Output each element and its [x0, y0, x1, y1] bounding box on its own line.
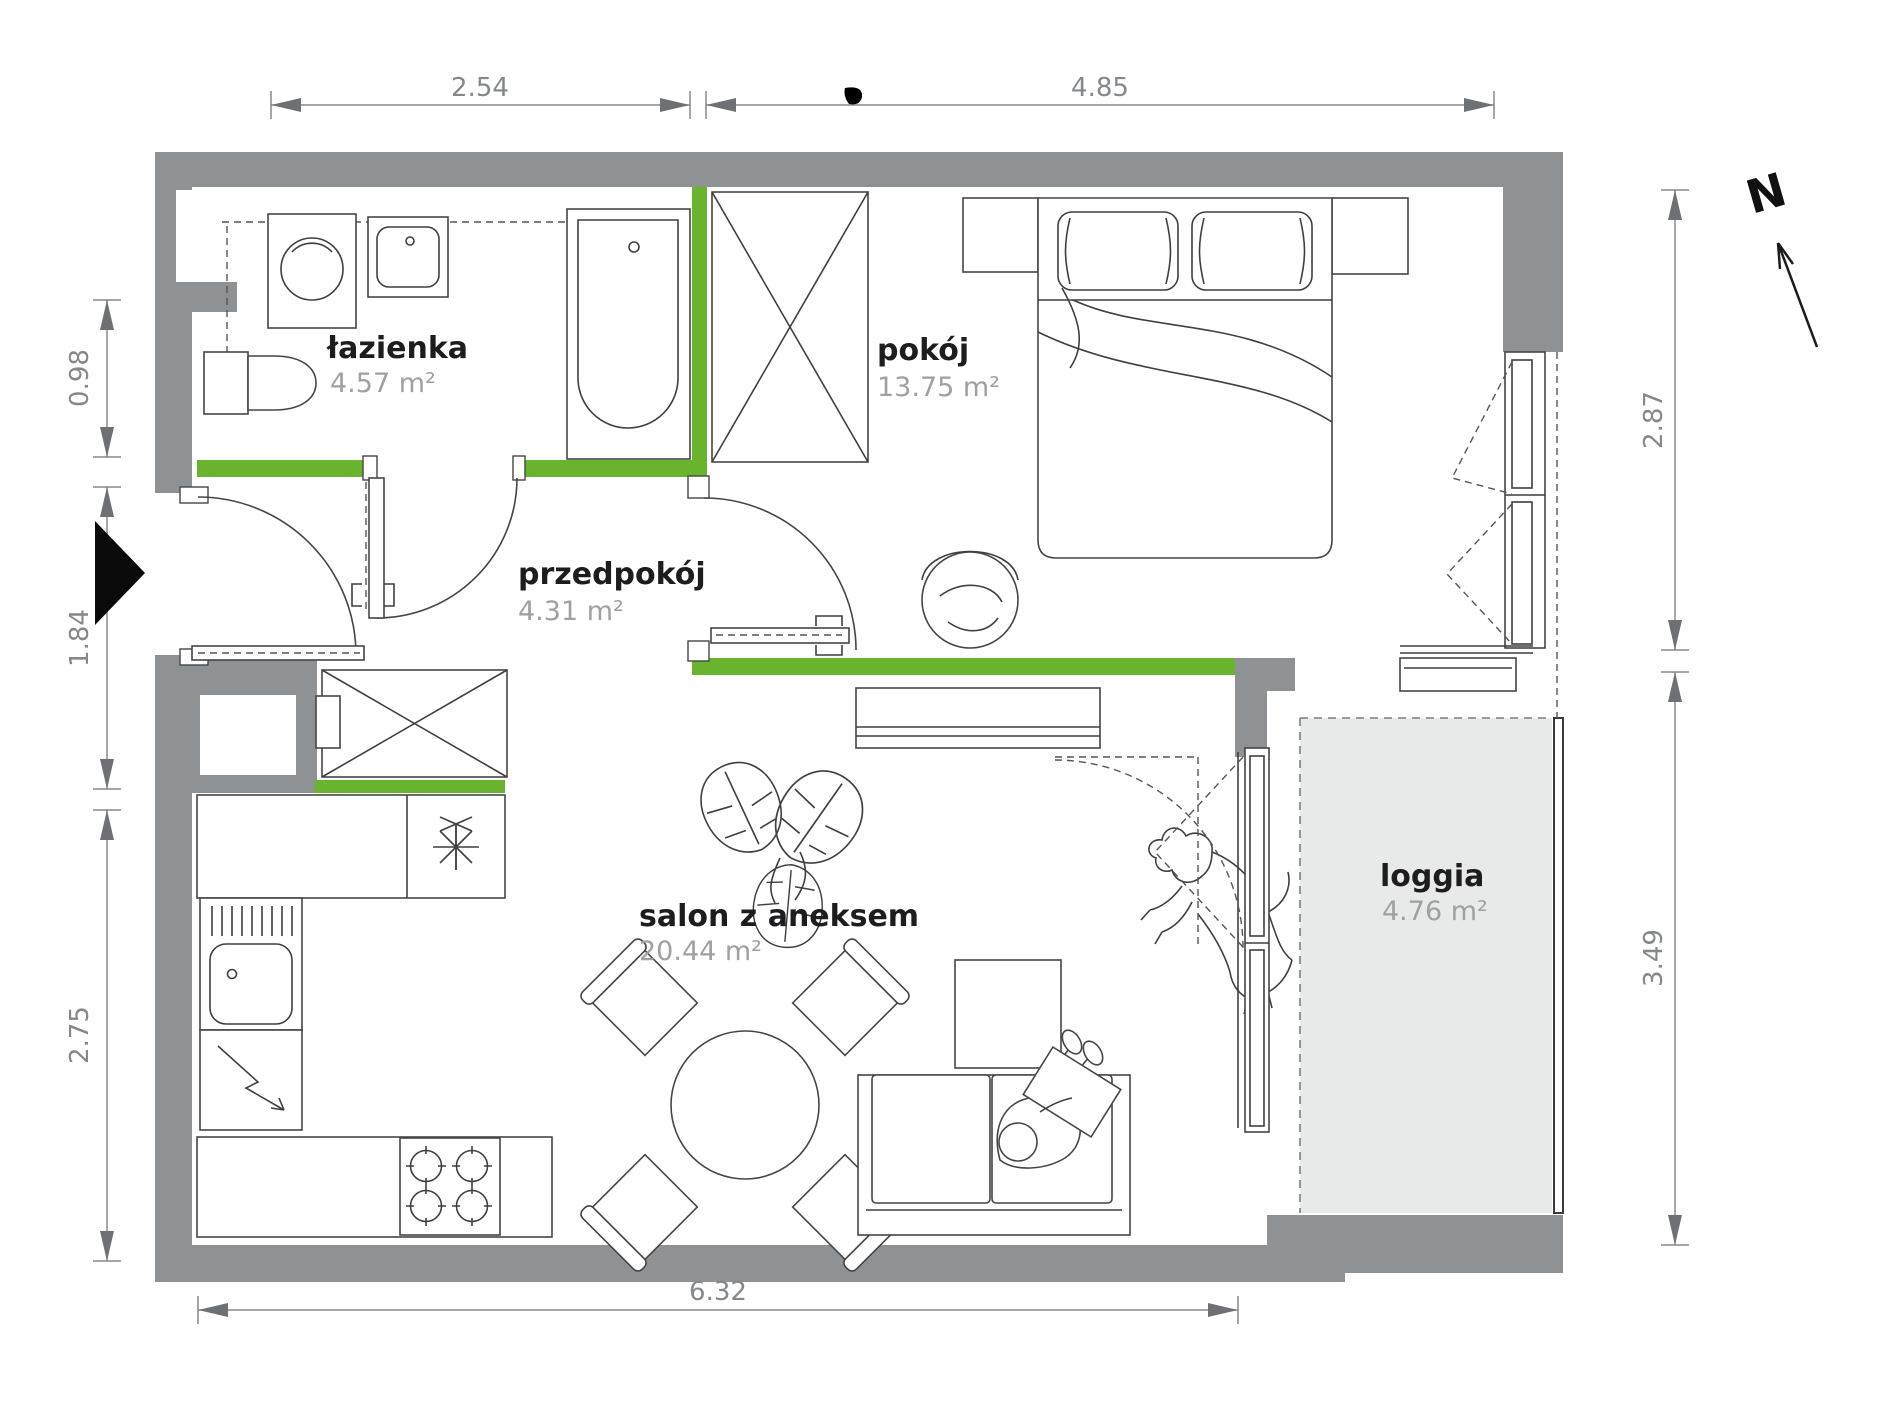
- bathtub-icon: [567, 209, 690, 459]
- floor-plan-canvas: 2.54 4.85 6.32 0.98 1.84 2.75 2.87 3.49 …: [0, 0, 1900, 1408]
- dim-right-2: 3.49: [1639, 929, 1669, 987]
- dim-left-1: 0.98: [65, 349, 95, 407]
- dining-table: [671, 1031, 819, 1179]
- dim-left-3: 2.75: [65, 1006, 95, 1064]
- room-label-salon: salon z aneksem: [639, 899, 919, 934]
- north-arrow-icon: N: [1740, 162, 1817, 347]
- coffee-table: [955, 960, 1061, 1068]
- armchair: [922, 552, 1018, 649]
- room-label-loggia: loggia: [1380, 859, 1484, 894]
- dishwasher-icon: [200, 1030, 302, 1130]
- room-area-lazienka: 4.57 m²: [330, 368, 436, 399]
- kitchen-counter-top: [197, 795, 505, 898]
- bathroom-sink-icon: [368, 217, 448, 297]
- room-label-lazienka: łazienka: [326, 331, 468, 366]
- hallway-wardrobe: [316, 670, 507, 777]
- bedroom-south-window: [1400, 646, 1533, 691]
- dim-bottom: 6.32: [689, 1277, 747, 1307]
- kitchen-counter-bottom: [197, 1137, 552, 1237]
- dim-right-1: 2.87: [1639, 391, 1669, 449]
- washing-machine-icon: [268, 214, 356, 328]
- room-area-salon: 20.44 m²: [639, 936, 762, 967]
- north-label: N: [1740, 162, 1792, 225]
- logo-fragment: [845, 87, 863, 104]
- nightstand-left: [963, 198, 1038, 272]
- floor-plan: 2.54 4.85 6.32 0.98 1.84 2.75 2.87 3.49 …: [0, 0, 1900, 1408]
- room-label-pokoj: pokój: [877, 333, 969, 368]
- room-area-pokoj: 13.75 m²: [877, 372, 1000, 403]
- dim-left-2: 1.84: [65, 609, 95, 667]
- shaft-niche: [200, 695, 296, 775]
- kitchen: [197, 795, 552, 1237]
- entrance-marker-icon: [95, 521, 145, 625]
- room-area-przedpokoj: 4.31 m²: [518, 596, 624, 627]
- nightstand-right: [1332, 198, 1408, 274]
- wall-niche: [176, 190, 222, 282]
- room-area-loggia: 4.76 m²: [1382, 896, 1488, 927]
- loggia-floor: [1300, 718, 1563, 1213]
- bedroom-wardrobe: [712, 192, 868, 462]
- bedroom-door: [704, 498, 856, 655]
- stove-icon: [400, 1138, 500, 1235]
- kitchen-sink-icon: [200, 898, 302, 1030]
- bathroom-door: [352, 478, 517, 618]
- entrance-door: [192, 497, 364, 660]
- dim-top-1: 2.54: [451, 73, 509, 103]
- tv-sideboard: [856, 688, 1100, 748]
- room-label-przedpokoj: przedpokój: [518, 557, 706, 592]
- bed: [963, 198, 1408, 558]
- dim-top-2: 4.85: [1071, 73, 1129, 103]
- toilet-icon: [204, 352, 316, 414]
